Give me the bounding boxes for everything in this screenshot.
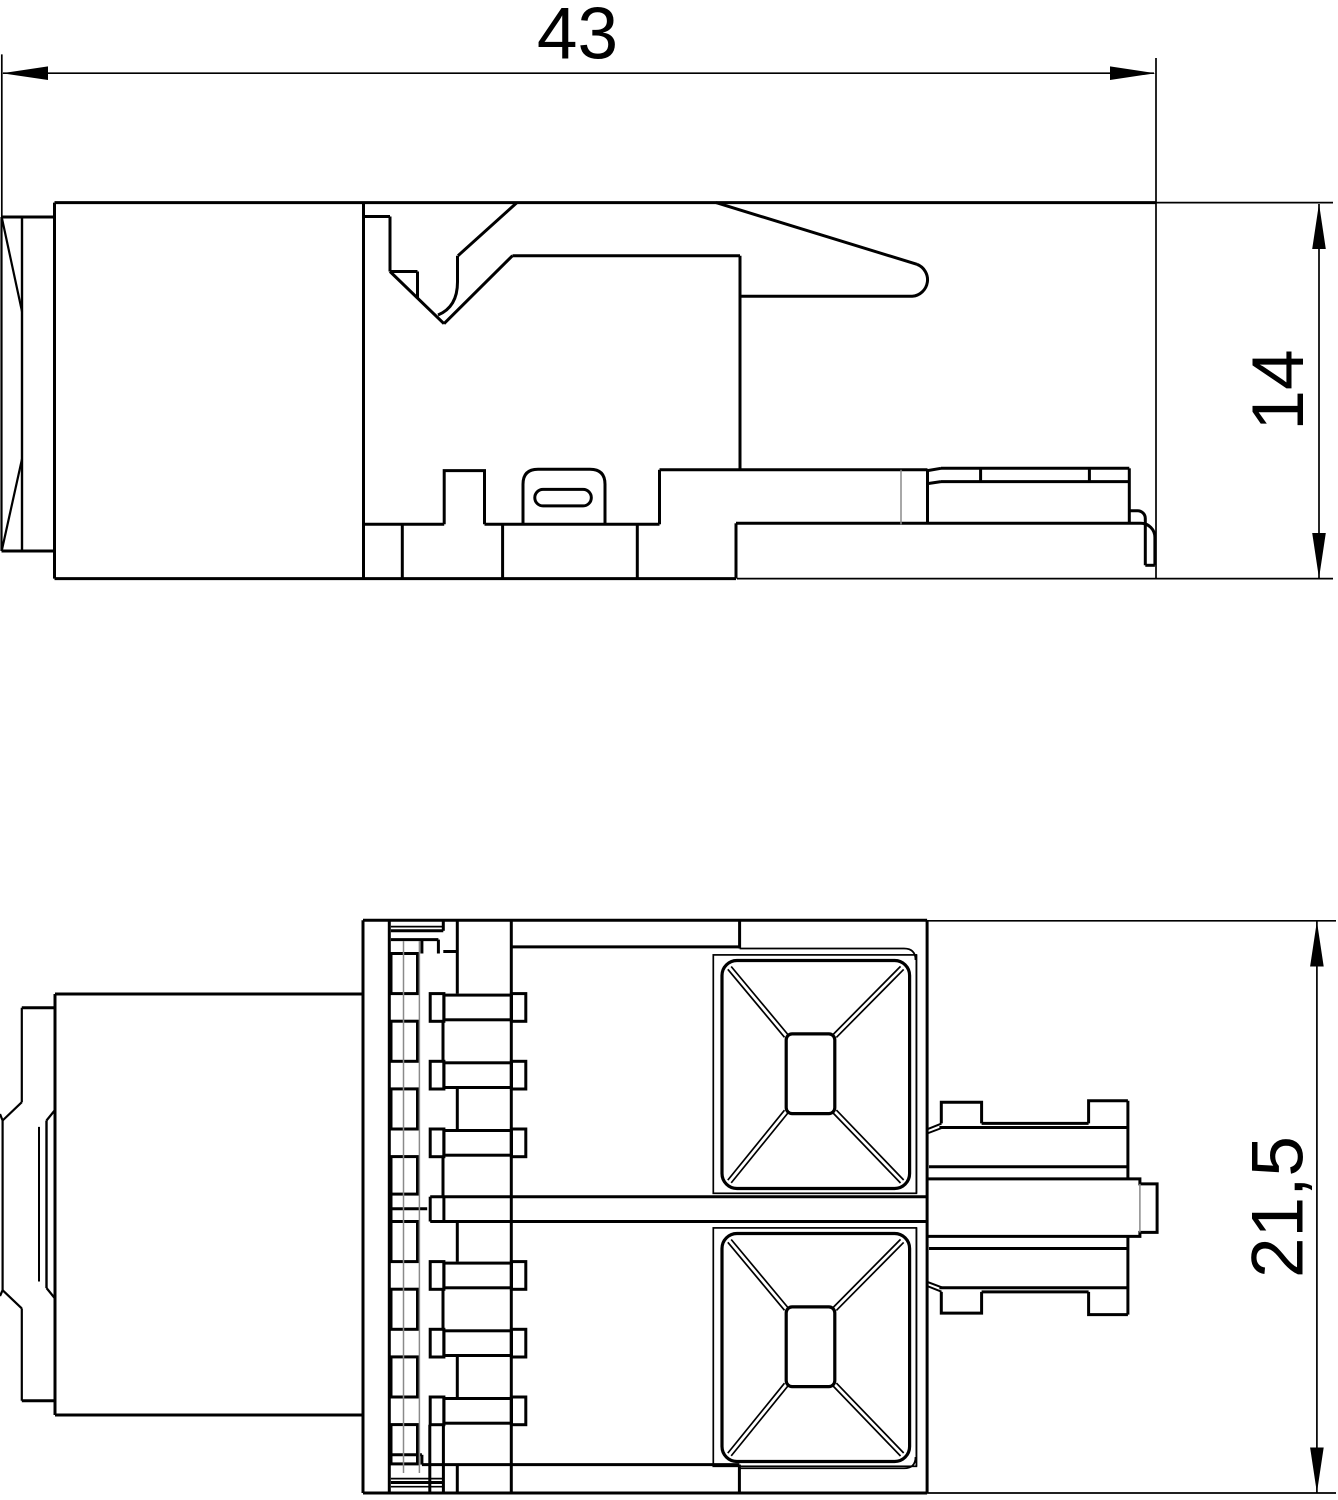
svg-text:14: 14 (1238, 349, 1319, 430)
svg-text:43: 43 (537, 0, 618, 75)
svg-text:21,5: 21,5 (1237, 1136, 1318, 1278)
